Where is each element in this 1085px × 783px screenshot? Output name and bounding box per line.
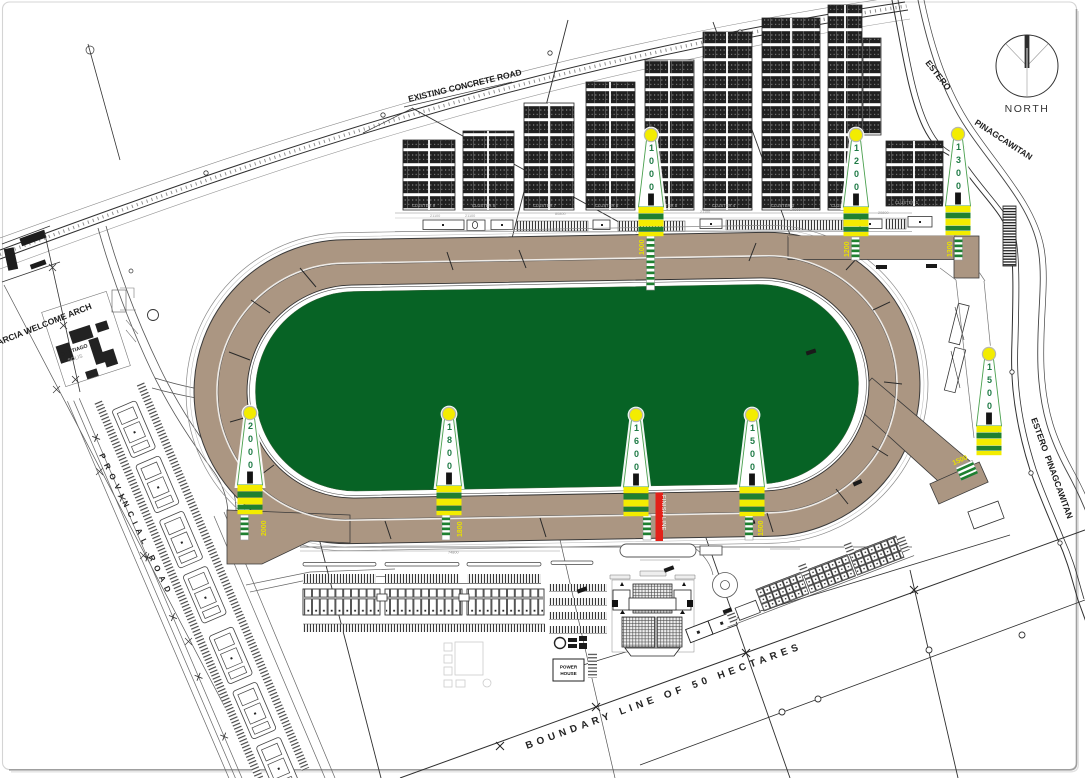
svg-text:80800: 80800 (790, 208, 801, 212)
svg-text:HOUSE: HOUSE (560, 671, 576, 676)
svg-text:CLUSTER 1: CLUSTER 1 (895, 200, 919, 205)
svg-text:1800: 1800 (457, 521, 464, 537)
svg-text:CLUSTER 4: CLUSTER 4 (712, 203, 736, 208)
svg-text:POWER: POWER (560, 665, 578, 670)
svg-text:74800: 74800 (448, 551, 459, 555)
svg-text:FINISH LINE: FINISH LINE (660, 495, 666, 531)
svg-text:CLUSTER 9: CLUSTER 9 (412, 203, 436, 208)
svg-text:2000: 2000 (261, 520, 268, 536)
svg-text:21100: 21100 (465, 214, 475, 218)
svg-text:20800: 20800 (878, 211, 889, 215)
svg-text:80800: 80800 (555, 212, 566, 216)
svg-text:NORTH: NORTH (1005, 103, 1050, 115)
svg-text:1200: 1200 (844, 241, 851, 257)
svg-text:21100: 21100 (700, 210, 710, 214)
svg-text:1500: 1500 (758, 520, 765, 536)
svg-text:1000: 1000 (639, 239, 646, 255)
svg-text:CLUSTER 7: CLUSTER 7 (533, 203, 557, 208)
svg-text:CLUSTER 6: CLUSTER 6 (595, 203, 619, 208)
svg-text:1300: 1300 (947, 241, 954, 257)
svg-text:21100: 21100 (430, 214, 440, 218)
svg-text:CLUSTER 8: CLUSTER 8 (472, 203, 496, 208)
